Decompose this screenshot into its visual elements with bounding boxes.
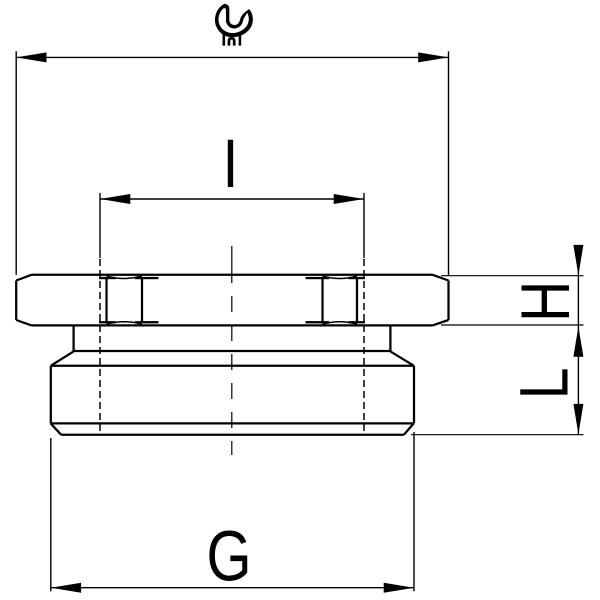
svg-text:I: I [223, 126, 239, 202]
svg-text:L: L [507, 368, 583, 400]
svg-text:G: G [206, 516, 251, 596]
svg-text:H: H [508, 281, 584, 322]
